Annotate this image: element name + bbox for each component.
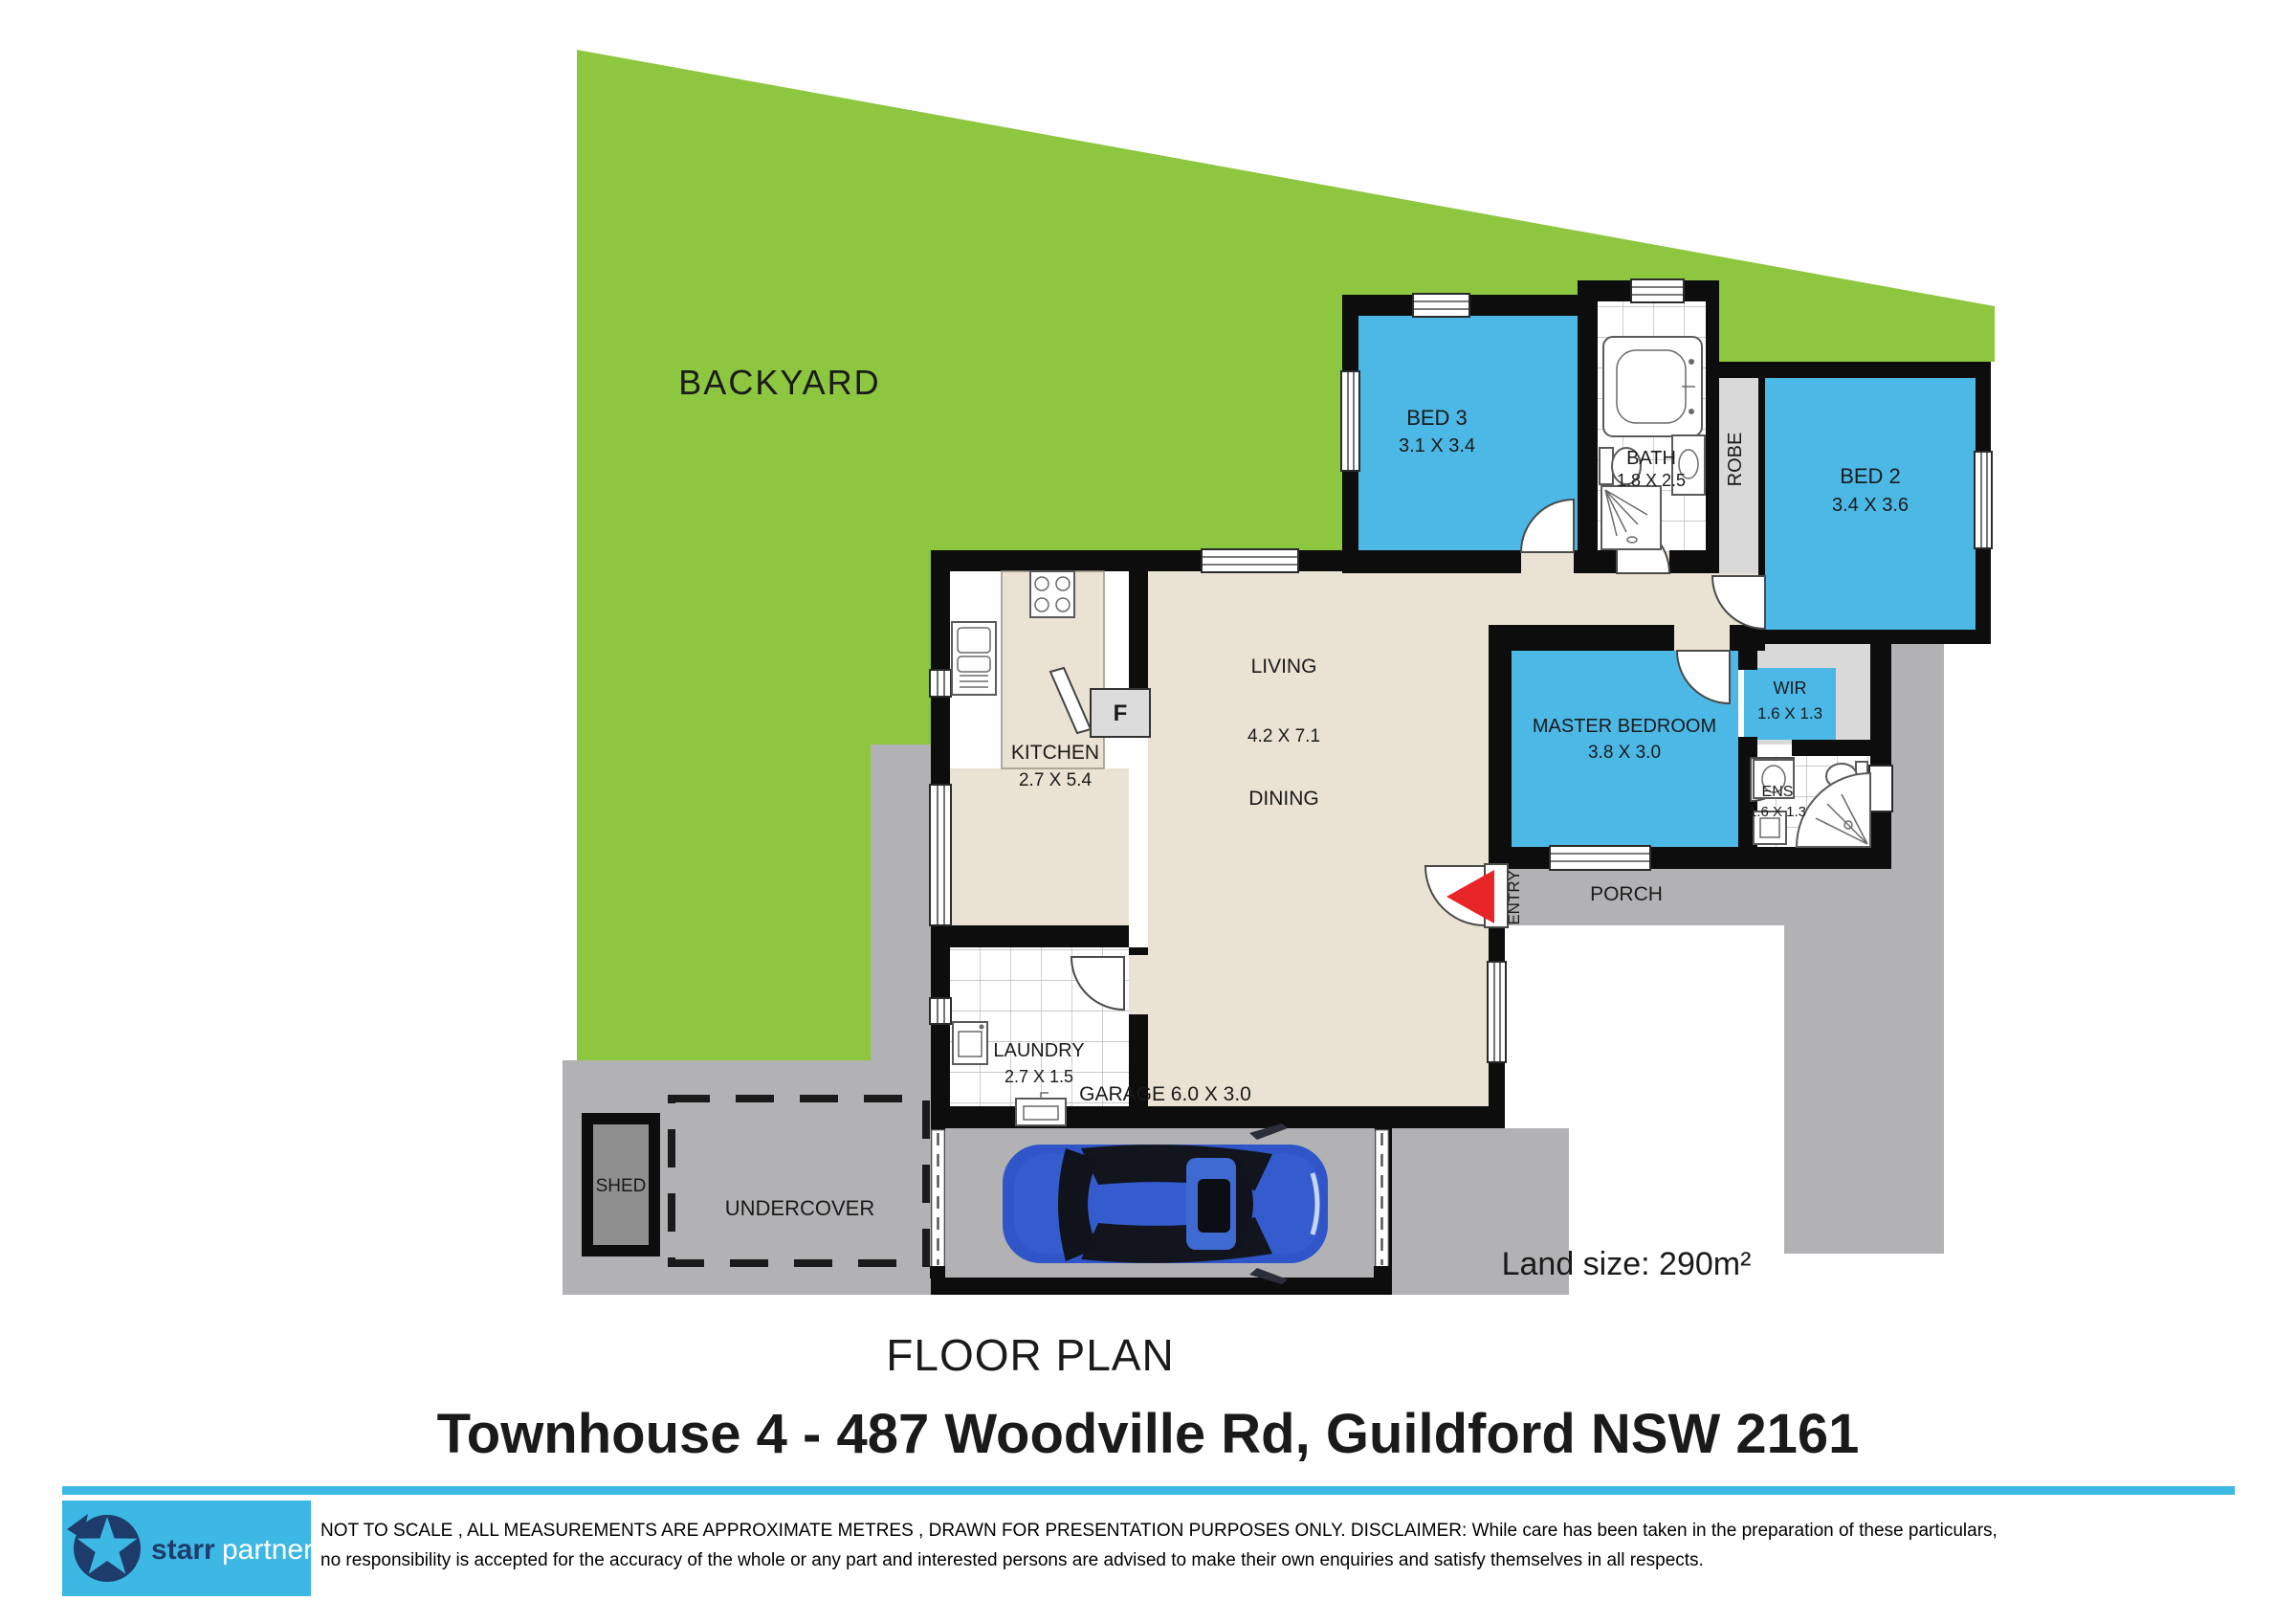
starr-partners-logo: starr partners (62, 1501, 327, 1596)
master-bottom-window (1550, 846, 1650, 870)
car (1003, 1123, 1328, 1284)
shed-label: SHED (596, 1176, 647, 1196)
bath-dims: 1.8 X 2.5 (1617, 471, 1686, 490)
laundry-tub-icon (1016, 1093, 1066, 1125)
living-label: LIVING (1251, 656, 1317, 678)
laundry-label: LAUNDRY (993, 1040, 1084, 1061)
dining-right-window (1488, 962, 1506, 1062)
bed3-label: BED 3 (1406, 406, 1468, 430)
living-top-window (1202, 549, 1298, 572)
stove-icon (1030, 571, 1074, 617)
backyard-label: BACKYARD (678, 363, 880, 402)
floor-plan-page: BACKYARD BED 3 3.1 X 3.4 BATH 1.8 X 2.5 … (0, 0, 2296, 1623)
kitchen-sink-icon (952, 622, 996, 695)
footer-divider-bar (62, 1486, 2235, 1495)
disclaimer-line1: NOT TO SCALE , ALL MEASUREMENTS ARE APPR… (320, 1521, 1998, 1541)
fridge-label: F (1114, 700, 1128, 726)
bathtub-icon (1603, 337, 1702, 436)
master-label: MASTER BEDROOM (1533, 716, 1716, 737)
living-dims: 4.2 X 7.1 (1247, 726, 1320, 746)
master-dims: 3.8 X 3.0 (1588, 743, 1661, 763)
ens-dims: 1.6 X 1.3 (1749, 804, 1806, 820)
bed3-dims: 3.1 X 3.4 (1399, 435, 1475, 456)
kitchen-label: KITCHEN (1011, 742, 1099, 764)
washing-machine-icon (953, 1022, 987, 1064)
land-size-text: Land size: 290m² (1502, 1246, 1752, 1282)
laundry-dims: 2.7 X 1.5 (1004, 1067, 1073, 1086)
bed2-dims: 3.4 X 3.6 (1832, 495, 1909, 516)
bed3-top-window (1413, 294, 1469, 317)
undercover-label: UNDERCOVER (725, 1196, 874, 1220)
logo-text-partners: partners (222, 1534, 327, 1566)
kitchen-floor-lower (950, 768, 1129, 925)
wir-label: WIR (1774, 678, 1807, 698)
dining-label: DINING (1248, 788, 1319, 810)
wir-dims: 1.6 X 1.3 (1757, 704, 1822, 723)
floor-plan-title: FLOOR PLAN (886, 1330, 1174, 1380)
bed2-right-window (1975, 452, 1992, 548)
bath-top-window (1631, 279, 1684, 302)
garage-label: GARAGE 6.0 X 3.0 (1079, 1083, 1251, 1105)
address-title: Townhouse 4 - 487 Woodville Rd, Guildfor… (437, 1403, 1860, 1465)
kitchen-left-window (930, 785, 951, 925)
laundry-left-window (930, 998, 951, 1024)
bed3-left-window (1341, 371, 1359, 471)
logo-text-starr: starr (151, 1534, 215, 1566)
bed2-label: BED 2 (1840, 464, 1901, 488)
porch-label: PORCH (1590, 883, 1663, 905)
robe-label: ROBE (1725, 433, 1746, 487)
laundry-door-floor-patch (1129, 952, 1148, 1014)
kitchen-upper-left-window (930, 670, 951, 697)
ens-label: ENS (1762, 784, 1794, 800)
bath-shower-icon (1601, 486, 1661, 549)
ens-right-window (1869, 766, 1892, 811)
disclaimer-line2: no responsibility is accepted for the ac… (320, 1550, 1704, 1570)
kitchen-dims: 2.7 X 5.4 (1019, 770, 1092, 790)
entry-label: ENTRY (1505, 870, 1523, 924)
floor-plan-canvas: BACKYARD BED 3 3.1 X 3.4 BATH 1.8 X 2.5 … (0, 0, 2296, 1623)
bath-label: BATH (1626, 448, 1676, 469)
